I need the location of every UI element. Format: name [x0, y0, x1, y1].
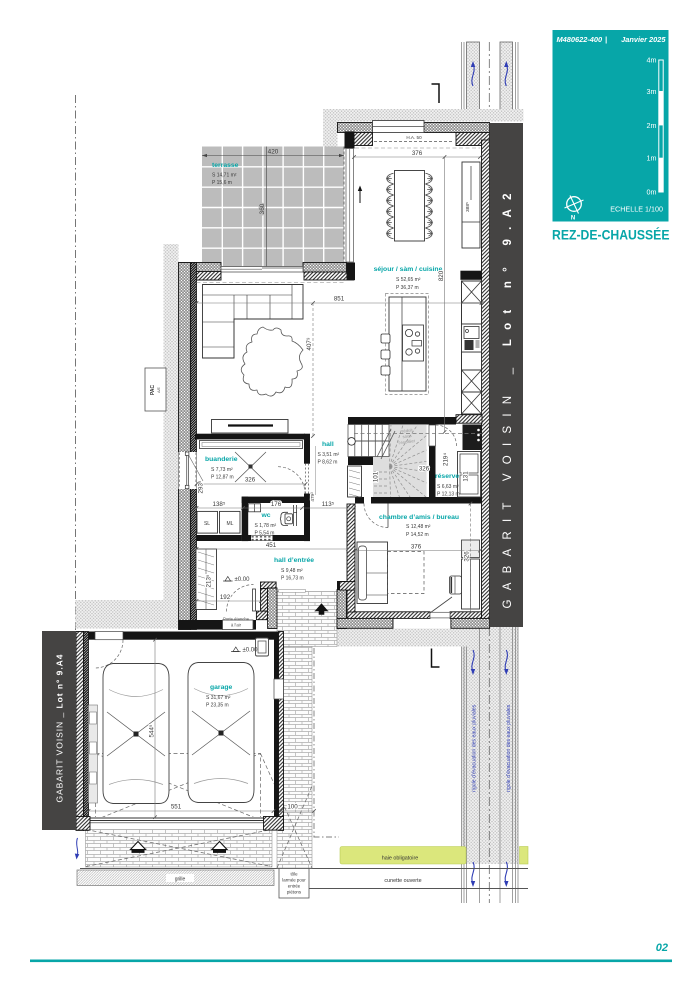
svg-text:407⁹: 407⁹	[306, 337, 313, 350]
svg-text:GABARIT VOISIN _ Lot n° 9.A4: GABARIT VOISIN _ Lot n° 9.A4	[55, 654, 65, 802]
svg-text:ML: ML	[227, 521, 234, 527]
svg-text:entrée: entrée	[288, 884, 301, 889]
svg-text:100: 100	[287, 804, 298, 811]
svg-text:A/E: A/E	[157, 387, 161, 393]
svg-text:P 12,13 m: P 12,13 m	[437, 492, 460, 498]
svg-text:H.A. 50: H.A. 50	[406, 135, 422, 140]
svg-text:Porte étanche: Porte étanche	[223, 617, 250, 622]
svg-text:02: 02	[656, 942, 668, 954]
svg-text:213⁵: 213⁵	[206, 574, 213, 587]
svg-text:3m: 3m	[647, 87, 657, 96]
svg-text:138⁵: 138⁵	[213, 501, 226, 508]
svg-text:grille: grille	[175, 877, 186, 883]
svg-text:544⁵: 544⁵	[149, 724, 156, 737]
svg-text:séjour / sàm / cuisine: séjour / sàm / cuisine	[374, 266, 443, 273]
svg-text:P 8,62 m: P 8,62 m	[318, 460, 338, 466]
svg-text:388⁵: 388⁵	[465, 202, 471, 212]
svg-text:551: 551	[171, 804, 182, 811]
svg-text:S 52,65 m²: S 52,65 m²	[396, 277, 421, 283]
svg-text:P 16,73 m: P 16,73 m	[281, 576, 304, 582]
svg-text:360: 360	[259, 203, 266, 214]
svg-text:hall: hall	[322, 441, 334, 448]
svg-text:P 23,35 m: P 23,35 m	[206, 703, 229, 709]
svg-text:1m: 1m	[647, 154, 657, 163]
svg-text:REZ-DE-CHAUSSÉE: REZ-DE-CHAUSSÉE	[552, 227, 670, 243]
svg-text:176: 176	[271, 501, 282, 508]
svg-text:S 6,63 m²: S 6,63 m²	[437, 484, 459, 490]
svg-text:PAC: PAC	[150, 385, 156, 396]
svg-text:S 9,48 m²: S 9,48 m²	[281, 568, 303, 574]
svg-text:chambre d’amis / bureau: chambre d’amis / bureau	[379, 514, 459, 521]
svg-text:420: 420	[268, 149, 279, 156]
svg-text:S 14,71 m²: S 14,71 m²	[212, 173, 237, 179]
svg-text:±0.00: ±0.00	[243, 648, 259, 654]
svg-text:garage: garage	[210, 684, 233, 691]
svg-text:820: 820	[438, 270, 445, 281]
svg-text:219⁴: 219⁴	[443, 453, 450, 466]
svg-text:0m: 0m	[647, 188, 657, 197]
svg-text:S 1,78 m²: S 1,78 m²	[255, 523, 277, 529]
svg-text:2m: 2m	[647, 121, 657, 130]
svg-text:131: 131	[463, 471, 470, 482]
svg-text:479³: 479³	[310, 492, 315, 502]
svg-text:S 7,73 m²: S 7,73 m²	[211, 467, 233, 473]
svg-text:113⁵: 113⁵	[322, 501, 335, 508]
svg-text:haie obligatoire: haie obligatoire	[382, 856, 419, 862]
svg-text:326: 326	[464, 551, 471, 562]
svg-text:851: 851	[334, 296, 345, 303]
svg-text:S 12,48 m²: S 12,48 m²	[406, 524, 431, 530]
svg-text:P 14,52 m: P 14,52 m	[406, 532, 429, 538]
svg-text:±0.00: ±0.00	[235, 577, 251, 583]
svg-text:à l’air: à l’air	[231, 623, 242, 628]
svg-text:P 5,54 m: P 5,54 m	[255, 531, 275, 537]
svg-text:M480622-400: M480622-400	[557, 35, 604, 44]
svg-text:buanderie: buanderie	[205, 456, 238, 463]
svg-text:hall d’entrée: hall d’entrée	[274, 557, 314, 564]
svg-text:376: 376	[411, 544, 422, 551]
svg-text:Janvier 2025: Janvier 2025	[621, 35, 666, 44]
svg-text:S 3,51 m²: S 3,51 m²	[318, 452, 340, 458]
svg-text:larmée pour: larmée pour	[282, 878, 306, 883]
svg-text:piétons: piétons	[287, 890, 302, 895]
svg-text:4m: 4m	[647, 56, 657, 65]
svg-text:P 15,6 m: P 15,6 m	[212, 180, 232, 186]
svg-text:SL: SL	[204, 521, 210, 527]
svg-text:cunette ouverte: cunette ouverte	[384, 878, 421, 884]
svg-text:326: 326	[245, 477, 256, 484]
svg-text:451: 451	[266, 542, 277, 549]
svg-text:|: |	[605, 35, 607, 44]
svg-text:101: 101	[373, 471, 380, 482]
svg-text:ECHELLE 1/100: ECHELLE 1/100	[610, 205, 663, 214]
svg-text:réserve: réserve	[435, 473, 459, 480]
svg-text:terrasse: terrasse	[212, 162, 239, 169]
svg-text:wc: wc	[261, 512, 271, 519]
svg-text:P 36,37 m: P 36,37 m	[396, 285, 419, 291]
svg-text:N: N	[571, 216, 575, 222]
svg-text:P 12,87 m: P 12,87 m	[211, 475, 234, 481]
svg-text:S 31,67 m²: S 31,67 m²	[206, 695, 231, 701]
svg-text:tôle: tôle	[290, 872, 298, 877]
svg-text:293⁵: 293⁵	[198, 480, 205, 493]
svg-text:192: 192	[220, 594, 231, 601]
svg-text:376: 376	[412, 150, 423, 157]
svg-text:rigole d’évacuation des eaux p: rigole d’évacuation des eaux pluviales	[506, 704, 512, 792]
svg-text:326: 326	[419, 466, 430, 473]
svg-text:rigole d’évacuation des eaux p: rigole d’évacuation des eaux pluviales	[472, 704, 478, 792]
